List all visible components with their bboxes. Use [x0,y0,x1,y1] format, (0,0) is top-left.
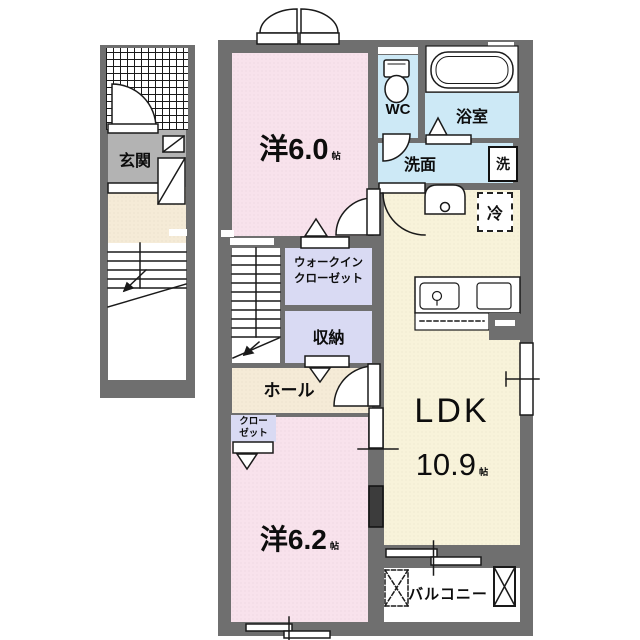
genkan-label: 玄関 [106,147,164,171]
closet-label: クロー ゼット [231,416,276,441]
wic-label: ウォークイン クローゼット [285,256,372,287]
porch-hatch [106,48,188,130]
washer-label: 洗 [496,154,510,174]
ldk-size: 10.9 [416,447,476,483]
hall-label: ホール [230,376,348,401]
washing-machine-box: 洗 [488,146,518,182]
ldk-size-label: 10.9帖 [384,447,520,483]
western2-name: 洋6.2 [260,518,327,558]
double-swing-window-icon [257,9,339,44]
staircase-1f-floor [108,243,186,380]
ldk-unit: 帖 [479,464,488,478]
ldk-name-label: LDK [384,392,520,431]
bathroom-label: 浴室 [425,103,519,127]
western1-name: 洋6.0 [259,126,328,168]
room-ldk [384,190,520,545]
storage-label: 収納 [285,324,372,348]
staircase-2f-floor [232,248,280,363]
washroom-label: 洗面 [380,151,460,175]
western2-unit: 帖 [330,538,339,552]
western1-label: 洋6.0帖 [232,126,368,168]
room-wc [378,55,418,138]
refrigerator-box: 冷 [477,192,513,232]
western2-label: 洋6.2帖 [231,518,368,558]
fridge-label: 冷 [487,200,503,224]
balcony-label: バルコニー [398,583,498,604]
entry-corridor-floor [108,187,186,243]
floor-plan: 洗 冷 [0,0,640,640]
western1-unit: 帖 [332,148,341,162]
wc-label: WC [377,101,419,118]
